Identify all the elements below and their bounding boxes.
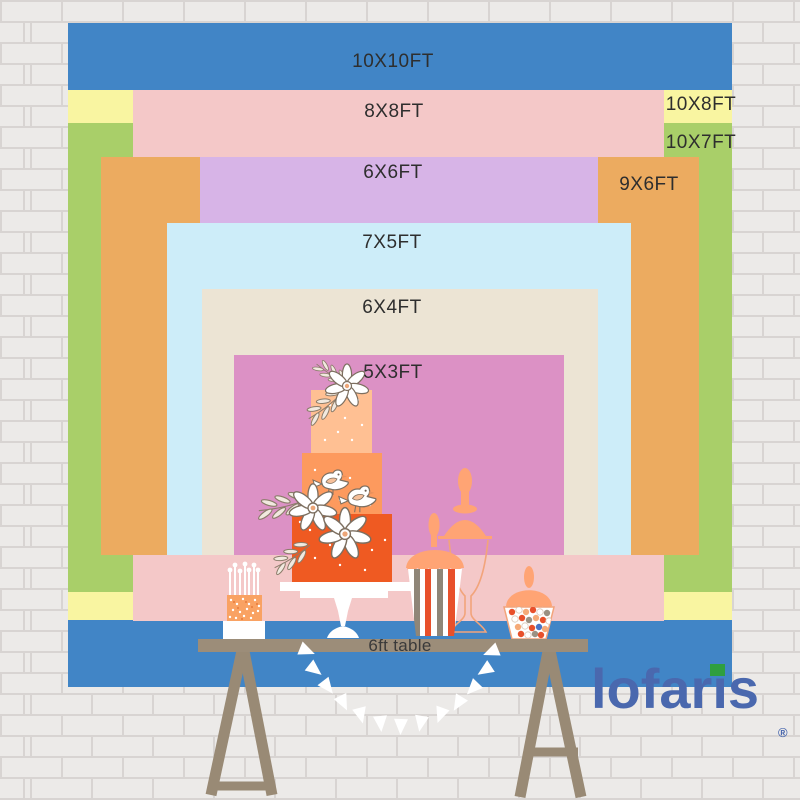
size-label-6x4ft: 6X4FT xyxy=(362,297,422,319)
candy-cup xyxy=(504,566,554,639)
size-label-5x3ft: 5X3FT xyxy=(363,362,423,384)
size-label-10x8ft: 10X8FT xyxy=(666,94,737,116)
mini-cake xyxy=(223,562,265,640)
trestle-leg-left xyxy=(211,646,272,795)
registered-trademark-icon: ® xyxy=(778,705,788,761)
size-label-9x6ft: 9X6FT xyxy=(619,174,679,196)
product-image: 10X10FT 8X8FT 10X8FT 10X7FT 6X6FT 9X6FT … xyxy=(0,0,800,800)
logo-letter-i-with-accent: i xyxy=(712,657,728,720)
size-label-7x5ft: 7X5FT xyxy=(362,232,422,254)
logo-text-part: lofar xyxy=(591,657,712,720)
size-label-10x7ft: 10X7FT xyxy=(666,132,737,154)
size-label-8x8ft: 8X8FT xyxy=(364,101,424,123)
trestle-leg-right xyxy=(520,646,581,797)
cake-stand xyxy=(280,582,413,638)
table-size-label: 6ft table xyxy=(368,636,431,656)
size-label-6x6ft: 6X6FT xyxy=(363,162,423,184)
logo-text-part: s xyxy=(728,657,759,720)
size-label-10x10ft: 10X10FT xyxy=(352,51,434,73)
lofaris-logo: lofaris ® xyxy=(591,661,759,717)
table xyxy=(198,639,588,797)
